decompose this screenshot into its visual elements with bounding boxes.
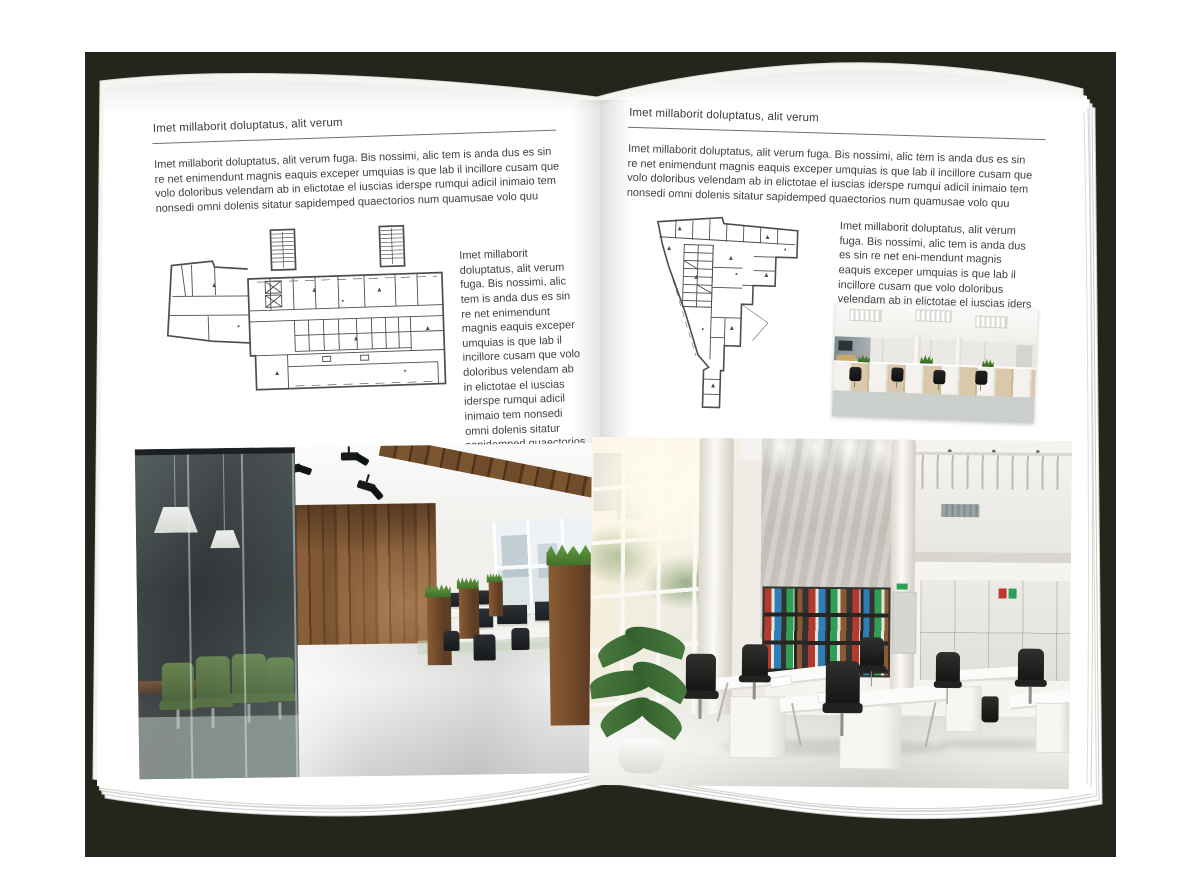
office-chair-black [933,370,946,384]
right-sidebar-paragraph: Imet millaborit doluptatus, alit verum f… [837,219,1038,313]
ceiling-light-panel [975,315,1007,328]
right-page: Imet millaborit doluptatus, alit verum I… [593,80,1084,806]
glass-reflection [135,447,300,779]
plant-pot [619,739,663,773]
office-chair-black [860,637,884,667]
desk-pedestal [1035,703,1069,753]
small-office-photo [832,302,1038,423]
left-intro-paragraph: Imet millaborit doluptatus, alit verum f… [154,145,562,217]
left-page: Imet millaborit doluptatus, alit verum I… [118,89,607,804]
potted-plant [589,627,700,778]
glass-meeting-room [135,447,300,779]
wood-plank-wall [284,503,438,653]
right-title-rule [628,127,1046,140]
mezzanine-railing [891,452,1071,491]
office-chair-black [891,367,904,381]
right-floor-plan [632,207,824,416]
office-chair-dark [473,634,495,660]
office-chair-black [742,644,768,678]
desk-pedestal [729,696,786,758]
wood-planter [459,587,480,639]
left-floor-plan [150,209,456,415]
office-chair-black [849,367,862,381]
waste-bin [981,696,998,722]
wall-screen [838,340,852,351]
office-chair-black [1018,649,1044,683]
fire-extinguisher-sign [999,588,1007,598]
plan-room-marks [663,226,787,389]
mezzanine-soffit [891,552,1071,564]
magazine-mockup-scene: Imet millaborit doluptatus, alit verum I… [0,0,1200,891]
first-aid-sign [1009,589,1017,599]
left-page-title: Imet millaborit doluptatus, alit verum [153,117,343,137]
office-chair-dark [443,631,459,651]
right-page-title: Imet millaborit doluptatus, alit verum [629,107,819,126]
office-chair-black [975,370,988,384]
office-chair-dark [511,628,529,650]
right-intro-paragraph: Imet millaborit doluptatus, alit verum f… [627,142,1037,213]
track-spotlight-icon [341,452,359,460]
ceiling-light-panel [915,309,951,322]
office-chair-black [826,661,860,707]
door [892,592,917,654]
ceiling-light-panel [849,309,881,322]
air-vent [941,504,979,517]
right-page-photo [589,437,1072,789]
office-chair-black [936,652,960,684]
desk-pedestal [945,686,981,732]
exit-sign [897,584,908,590]
desk-pedestal [839,705,902,770]
left-page-photo [135,443,608,780]
wood-planter [489,580,504,616]
